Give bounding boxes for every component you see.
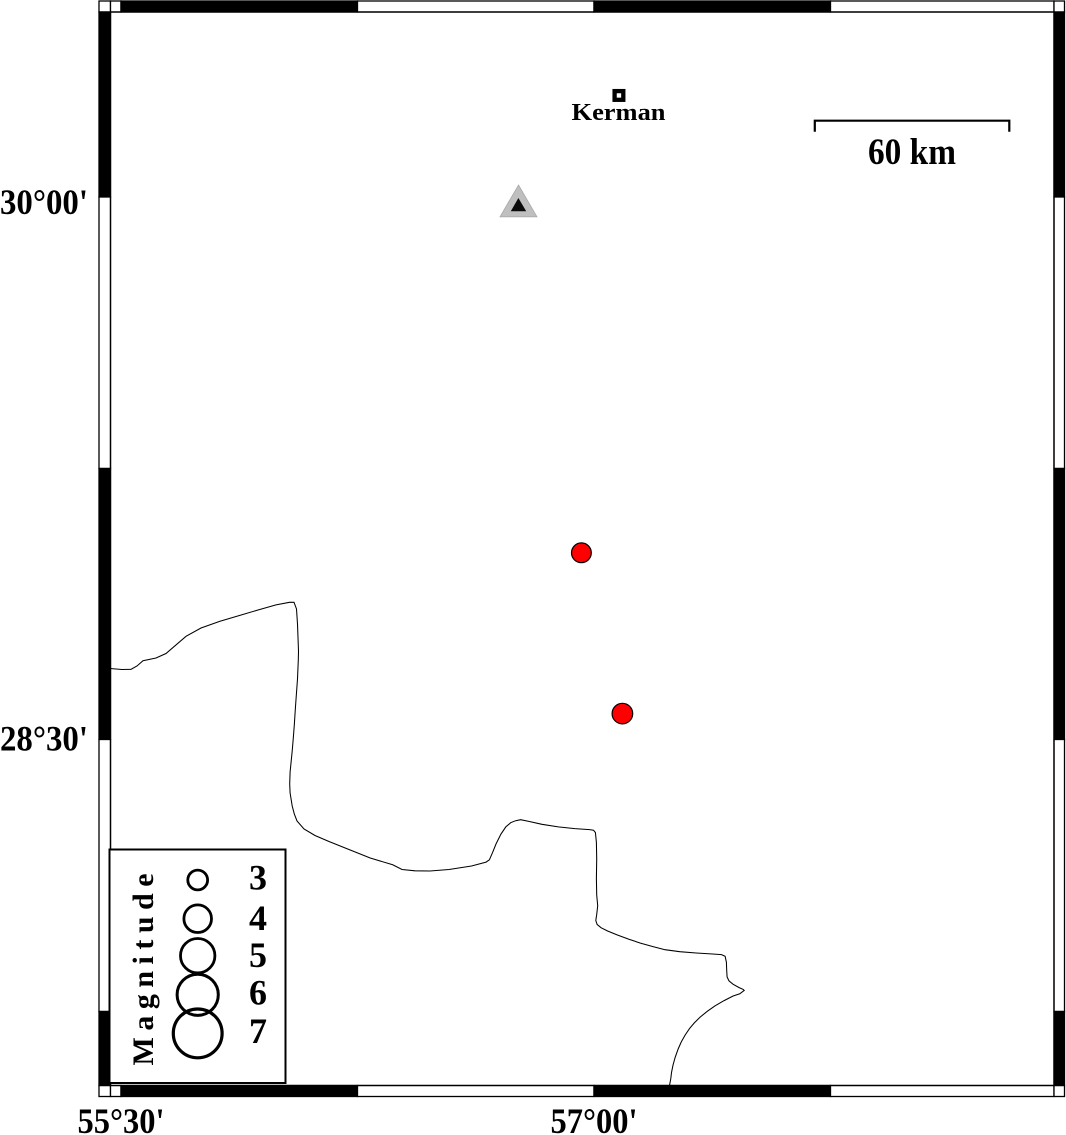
svg-text:7: 7 bbox=[249, 1011, 267, 1051]
svg-text:57°00': 57°00' bbox=[551, 1101, 638, 1135]
svg-text:6: 6 bbox=[249, 973, 267, 1013]
svg-text:3: 3 bbox=[249, 858, 267, 898]
svg-text:5: 5 bbox=[249, 935, 267, 975]
svg-text:4: 4 bbox=[249, 898, 267, 938]
svg-text:Magnitude: Magnitude bbox=[127, 867, 160, 1066]
svg-text:60 km: 60 km bbox=[868, 132, 956, 173]
svg-text:30°00': 30°00' bbox=[0, 182, 88, 222]
svg-text:Kerman: Kerman bbox=[572, 99, 666, 126]
svg-text:55°30': 55°30' bbox=[78, 1101, 165, 1135]
svg-text:28°30': 28°30' bbox=[0, 719, 88, 759]
